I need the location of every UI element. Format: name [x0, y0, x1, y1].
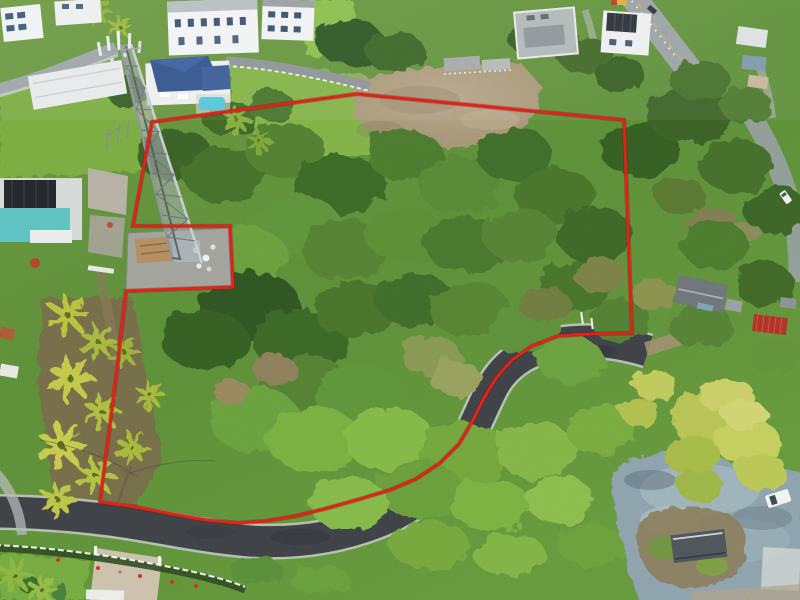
atmospheric-haze — [0, 0, 800, 120]
aerial-photo — [0, 0, 800, 600]
aerial-photo-canvas — [0, 0, 800, 600]
